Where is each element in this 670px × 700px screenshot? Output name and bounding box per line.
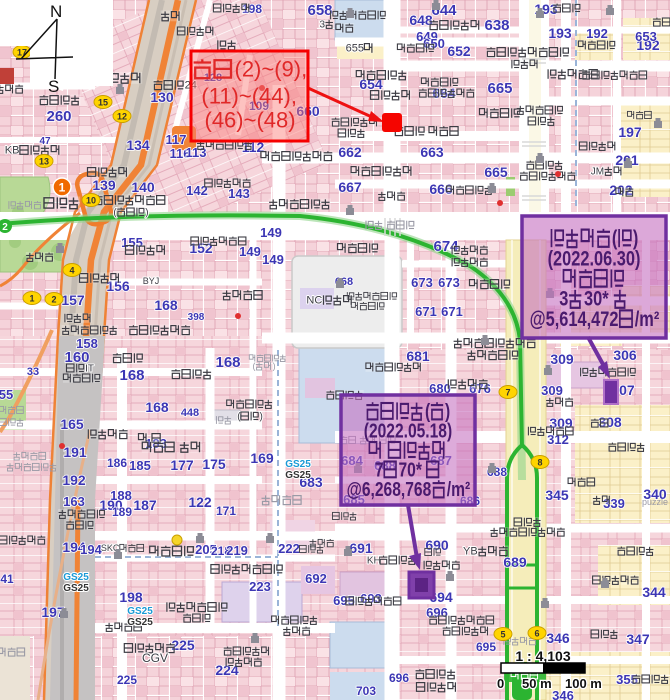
- svg-text:448: 448: [181, 407, 199, 419]
- svg-text:347: 347: [626, 631, 650, 647]
- svg-text:): ): [260, 411, 263, 422]
- svg-text:(: (: [253, 361, 256, 371]
- svg-text:KH: KH: [367, 555, 381, 566]
- svg-text:140: 140: [131, 179, 155, 195]
- svg-text:665: 665: [484, 164, 508, 180]
- svg-text:658: 658: [307, 2, 332, 19]
- svg-text:55: 55: [0, 387, 13, 402]
- svg-text:192: 192: [586, 26, 608, 41]
- svg-text:175: 175: [202, 456, 226, 472]
- svg-text:1 : 4,103: 1 : 4,103: [515, 648, 570, 664]
- svg-text:638: 638: [484, 17, 509, 34]
- svg-text:222: 222: [278, 541, 300, 556]
- svg-text:GS25: GS25: [63, 572, 89, 583]
- svg-text:171: 171: [216, 504, 236, 518]
- svg-text:187: 187: [133, 497, 157, 513]
- svg-text:139: 139: [92, 177, 116, 193]
- svg-text:GS25: GS25: [285, 459, 311, 470]
- svg-text:169: 169: [250, 450, 274, 466]
- svg-text:@5,614,472: @5,614,472: [530, 307, 619, 330]
- svg-text:41: 41: [0, 572, 14, 586]
- svg-text:(11)~(44),: (11)~(44),: [201, 84, 297, 109]
- svg-text:198: 198: [119, 589, 143, 605]
- svg-text:225: 225: [117, 673, 137, 687]
- svg-text:S: S: [48, 77, 59, 96]
- svg-text:652: 652: [447, 43, 471, 59]
- svg-text:346: 346: [546, 630, 570, 646]
- svg-text:3: 3: [320, 19, 326, 30]
- svg-text:695: 695: [476, 640, 496, 654]
- svg-text:219: 219: [226, 543, 248, 558]
- svg-text:309: 309: [550, 351, 574, 367]
- svg-text:149: 149: [260, 225, 282, 240]
- svg-text:168: 168: [215, 354, 240, 371]
- svg-text:143: 143: [228, 186, 250, 201]
- svg-text:185: 185: [129, 458, 151, 473]
- svg-text:2: 2: [2, 222, 8, 233]
- svg-text:15: 15: [98, 98, 108, 108]
- svg-text:0: 0: [497, 676, 504, 691]
- svg-text:IT: IT: [85, 363, 94, 374]
- svg-text:194: 194: [80, 542, 102, 557]
- svg-text:(2)~(9),: (2)~(9),: [235, 57, 308, 82]
- svg-text:2: 2: [51, 295, 56, 305]
- svg-text:197: 197: [618, 124, 642, 140]
- svg-text:5: 5: [500, 630, 505, 640]
- svg-text:GS25: GS25: [127, 606, 153, 617]
- svg-text:(2022.06.30): (2022.06.30): [548, 246, 641, 269]
- svg-text:191: 191: [63, 444, 87, 460]
- svg-text:663: 663: [420, 144, 444, 160]
- svg-text:689: 689: [503, 554, 527, 570]
- svg-text:): ): [273, 361, 276, 371]
- svg-text:13: 13: [39, 157, 49, 167]
- svg-text:8: 8: [537, 458, 542, 468]
- svg-text:130: 130: [150, 89, 174, 105]
- svg-text:223: 223: [249, 579, 271, 594]
- svg-text:@6,268,768: @6,268,768: [347, 478, 432, 500]
- svg-text:10: 10: [86, 196, 96, 206]
- svg-text:GS25: GS25: [127, 617, 153, 628]
- svg-text:6: 6: [534, 629, 539, 639]
- svg-text:260: 260: [46, 108, 71, 125]
- svg-text:692: 692: [305, 571, 327, 586]
- svg-text:186: 186: [107, 456, 127, 470]
- svg-text:4: 4: [69, 266, 74, 276]
- svg-text:(46)~(48): (46)~(48): [205, 108, 296, 133]
- svg-text:163: 163: [63, 494, 85, 509]
- svg-text:YB: YB: [463, 546, 478, 558]
- svg-text:100 m: 100 m: [565, 676, 602, 691]
- svg-text:117: 117: [166, 132, 187, 147]
- svg-text:665: 665: [487, 80, 512, 97]
- svg-text:192: 192: [62, 472, 86, 488]
- svg-text:177: 177: [170, 457, 194, 473]
- svg-text:1: 1: [59, 181, 66, 195]
- svg-text:puzzle: puzzle: [642, 497, 668, 507]
- svg-text:/m²: /m²: [635, 307, 660, 330]
- svg-text:17: 17: [17, 48, 27, 58]
- svg-text:157: 157: [61, 292, 85, 308]
- svg-text:GS25: GS25: [285, 470, 311, 481]
- svg-text:671: 671: [441, 304, 463, 319]
- svg-text:JM: JM: [591, 166, 604, 177]
- svg-text:673: 673: [438, 275, 460, 290]
- svg-text:306: 306: [613, 347, 637, 363]
- svg-text:345: 345: [545, 487, 569, 503]
- svg-text:134: 134: [126, 137, 150, 153]
- svg-text:168: 168: [154, 297, 178, 313]
- svg-text:50 m: 50 m: [522, 676, 552, 691]
- svg-text:703: 703: [356, 684, 376, 698]
- svg-text:NC: NC: [306, 295, 322, 307]
- svg-text:N: N: [50, 2, 62, 21]
- svg-text:696: 696: [389, 671, 409, 685]
- svg-text:): ): [145, 207, 148, 218]
- svg-text:309: 309: [541, 383, 563, 398]
- svg-text:(2022.05.18): (2022.05.18): [364, 419, 452, 441]
- svg-text:12: 12: [117, 112, 127, 122]
- svg-text:673: 673: [411, 275, 433, 290]
- svg-text:7: 7: [505, 388, 510, 398]
- svg-text:655: 655: [346, 43, 364, 55]
- svg-text:165: 165: [60, 416, 84, 432]
- svg-text:193: 193: [548, 25, 572, 41]
- svg-text:653: 653: [635, 29, 657, 44]
- svg-text:667: 667: [338, 179, 362, 195]
- svg-text:CGV: CGV: [142, 651, 168, 665]
- svg-text:33: 33: [27, 366, 39, 378]
- svg-text:189: 189: [112, 505, 132, 519]
- svg-text:691: 691: [349, 540, 373, 556]
- svg-text:GS25: GS25: [63, 583, 89, 594]
- svg-text:662: 662: [338, 144, 362, 160]
- svg-text:149: 149: [262, 252, 284, 267]
- svg-text:398: 398: [188, 312, 205, 323]
- svg-text:168: 168: [119, 367, 144, 384]
- svg-text:1: 1: [29, 294, 34, 304]
- svg-text:671: 671: [415, 304, 437, 319]
- svg-text:168: 168: [145, 399, 169, 415]
- svg-text:BYJ: BYJ: [143, 276, 160, 286]
- svg-text:KB: KB: [5, 145, 20, 157]
- svg-text:344: 344: [642, 584, 666, 600]
- svg-text:122: 122: [188, 494, 212, 510]
- svg-text:681: 681: [406, 348, 430, 364]
- svg-text:/m²: /m²: [447, 478, 470, 500]
- svg-text:149: 149: [239, 244, 261, 259]
